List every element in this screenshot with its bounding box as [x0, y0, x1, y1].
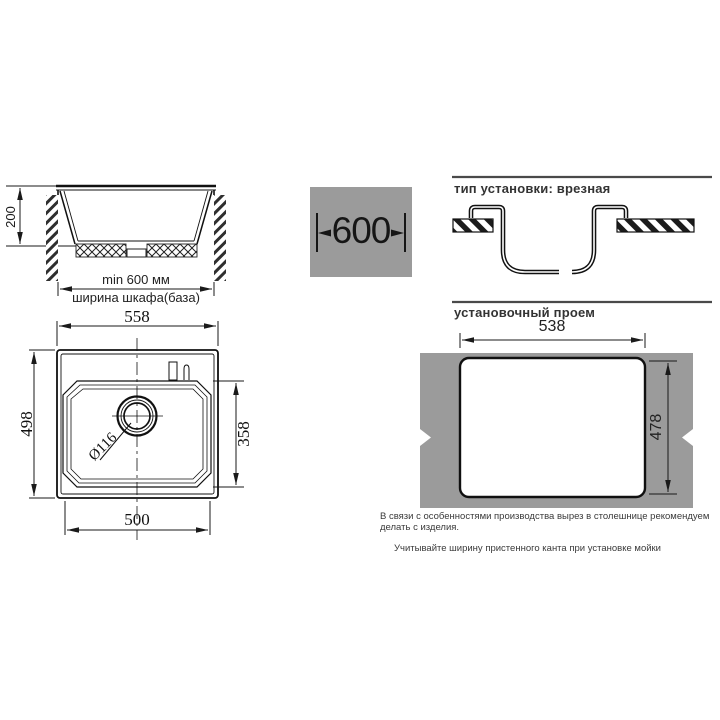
production-note: В связи с особенностями производства выр… — [380, 511, 716, 533]
sink-installation-drawing: 200 min 600 мм ширина шкафа(база) 600 ти… — [0, 0, 720, 720]
bowl-width-label: 500 — [87, 510, 187, 530]
cutout-opening — [460, 358, 645, 497]
min-width-label: min 600 мм — [56, 272, 216, 287]
installation-type-heading: тип установки: врезная — [454, 181, 610, 196]
outer-height-label: 498 — [17, 394, 35, 454]
top-view-drawing — [29, 321, 244, 540]
width-badge-value: 600 — [311, 209, 411, 253]
cabinet-wall-left-hatch — [46, 195, 58, 281]
sink-profile — [471, 207, 626, 272]
opening-width-label: 538 — [502, 318, 602, 336]
opening-height-label: 478 — [648, 397, 664, 457]
cabinet-width-label: ширина шкафа(база) — [46, 290, 226, 305]
sink-cross-section — [56, 186, 216, 257]
cabinet-wall-right-hatch — [214, 195, 226, 281]
countertop-right-hatch — [617, 219, 694, 232]
blueprint-linework — [0, 0, 720, 720]
height-dimension-label: 200 — [3, 197, 19, 237]
bowl-height-label: 358 — [234, 404, 252, 464]
edge-note: Учитывайте ширину пристенного канта при … — [394, 543, 661, 554]
countertop-left-hatch — [453, 219, 493, 232]
outer-width-label: 558 — [87, 307, 187, 327]
